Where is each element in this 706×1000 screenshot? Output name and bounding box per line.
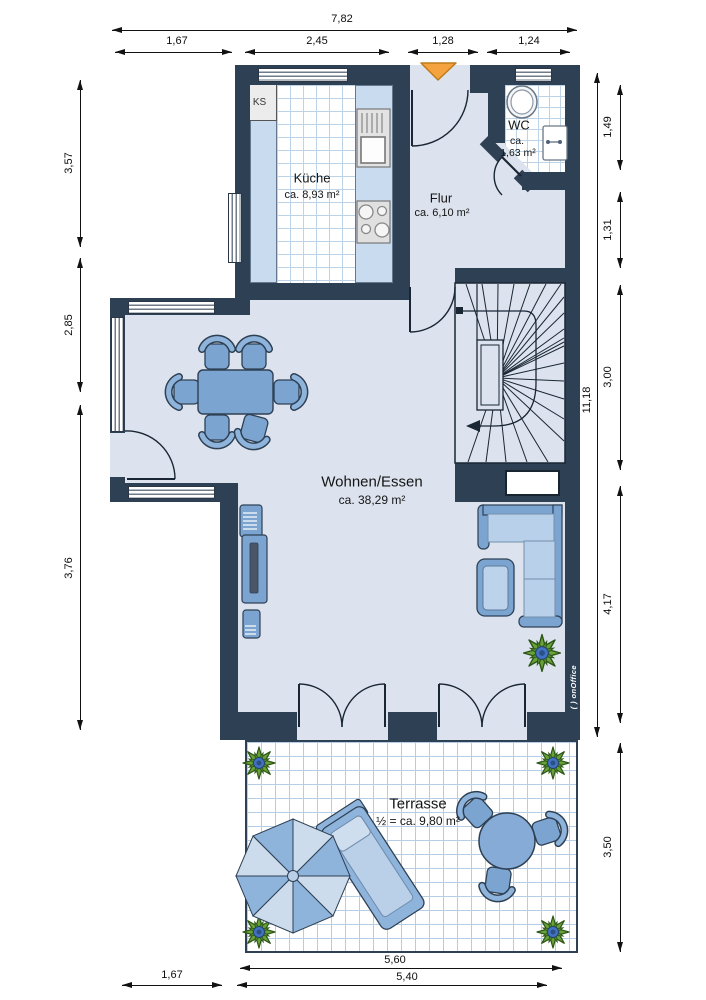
dining-chair — [274, 377, 304, 407]
dim-line — [80, 80, 81, 247]
dim-line — [80, 405, 81, 730]
entrance-marker-icon — [421, 63, 456, 80]
terrace-table-set — [454, 789, 568, 900]
plant-icon — [243, 747, 275, 779]
watermark: ( ) onOffice — [566, 646, 580, 728]
room-area-wc-prefix: ca. — [510, 135, 524, 147]
entrance-door — [412, 90, 468, 146]
dim-line — [80, 258, 81, 392]
bay-door — [125, 431, 175, 479]
dim-label: 1,24 — [518, 35, 539, 47]
room-label-flur: Flur — [430, 191, 452, 206]
dining-set — [169, 339, 305, 450]
dim-label: 1,28 — [432, 35, 453, 47]
tv-sideboard — [240, 505, 267, 638]
dim-line-total-height — [597, 73, 598, 737]
plant-icon — [537, 747, 569, 779]
dim-label: 3,50 — [602, 836, 614, 857]
room-area-terrasse: ½ = ca. 9,80 m² — [376, 814, 460, 828]
room-area-flur: ca. 6,10 m² — [414, 207, 469, 219]
coffee-table — [477, 559, 514, 616]
dim-line — [122, 985, 222, 986]
stove — [357, 201, 390, 243]
dining-chair — [202, 415, 232, 445]
plant-icon — [524, 635, 561, 672]
dim-line — [620, 285, 621, 470]
watermark-text: ( ) onOffice — [569, 665, 578, 709]
dim-line — [620, 85, 621, 170]
dim-line — [245, 52, 389, 53]
dim-label: 11,18 — [581, 387, 593, 414]
kitchen-sink-unit — [357, 109, 390, 167]
room-label-kueche: Küche — [294, 171, 331, 186]
dim-line-total-width — [112, 30, 577, 31]
dining-chair — [169, 377, 199, 407]
dim-label: 3,00 — [602, 366, 614, 387]
dim-line — [620, 743, 621, 952]
dining-chair — [202, 339, 232, 369]
dim-label: 1,67 — [166, 35, 187, 47]
dim-label: 7,82 — [331, 13, 352, 25]
room-label-wohnen: Wohnen/Essen — [321, 474, 422, 491]
toilet — [507, 86, 537, 118]
dim-line — [620, 192, 621, 268]
living-hall-door — [410, 287, 455, 332]
room-area-wc-value: 1,63 m² — [500, 147, 536, 159]
dim-label: 2,85 — [63, 314, 75, 335]
floor-plan: KS — [0, 0, 706, 1000]
terrace-table — [479, 813, 535, 869]
dim-label: 1,49 — [602, 116, 614, 137]
dim-line — [620, 486, 621, 723]
dim-line — [115, 52, 232, 53]
dim-label: 3,76 — [63, 557, 75, 578]
room-area-wohnen: ca. 38,29 m² — [339, 493, 406, 507]
room-area-kueche: ca. 8,93 m² — [284, 189, 339, 201]
dim-label: 5,60 — [384, 954, 405, 966]
dining-chair — [235, 413, 272, 450]
dim-label: 2,45 — [306, 35, 327, 47]
dim-label: 5,40 — [396, 971, 417, 983]
parasol — [236, 819, 350, 933]
wc-sink — [543, 126, 567, 160]
dim-label: 1,67 — [161, 969, 182, 981]
dim-label: 4,17 — [602, 593, 614, 614]
terrace-chair — [481, 866, 515, 900]
terrace-chair — [530, 811, 568, 849]
staircase — [455, 283, 565, 463]
plant-icon — [537, 916, 569, 948]
dim-label: 3,57 — [63, 152, 75, 173]
room-label-wc: WC — [508, 118, 530, 133]
dim-label: 1,31 — [602, 219, 614, 240]
dining-table — [198, 370, 273, 414]
room-label-terrasse: Terrasse — [389, 796, 447, 813]
dim-line — [237, 985, 547, 986]
dim-line — [240, 968, 562, 969]
dim-line — [408, 52, 478, 53]
dining-chair — [239, 339, 269, 369]
dim-line — [487, 52, 570, 53]
terrace-doors — [299, 684, 525, 727]
